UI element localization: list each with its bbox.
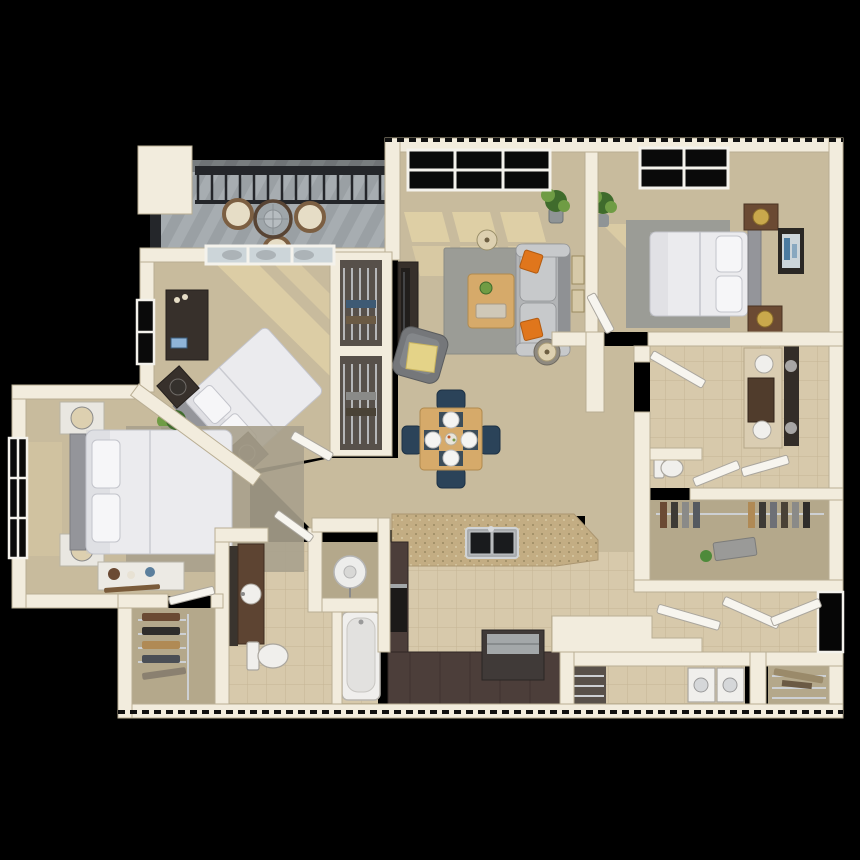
toilet-nook-wall (650, 448, 702, 460)
steel-top-appliance (482, 630, 544, 680)
vanity-mirror (229, 546, 238, 646)
lamp (71, 407, 93, 429)
pillow (92, 440, 120, 488)
bedroom2-north-wall (140, 248, 210, 262)
pillow (92, 494, 120, 542)
bathtub (342, 612, 380, 700)
folded-clothes (142, 641, 180, 649)
sink (753, 421, 771, 439)
range-handle (389, 584, 407, 588)
bedroom2-dresser (166, 290, 208, 360)
kitchen-double-sink (466, 526, 518, 558)
front-door-opening (818, 592, 843, 652)
dining-chair (402, 426, 422, 454)
patio-table (255, 201, 291, 237)
washer-door (694, 678, 708, 692)
balcony-column (138, 146, 192, 214)
folded-clothes (142, 613, 180, 621)
patio-chair (296, 203, 324, 231)
bedroom3-bed (650, 228, 761, 320)
dining-chair (437, 390, 465, 410)
hanging-clothes (346, 300, 376, 308)
heater-nook-north-wall (312, 518, 378, 532)
hanging-clothes (346, 392, 376, 400)
centerpiece (445, 433, 457, 445)
floor-plan-render (0, 0, 860, 860)
orange-pillow (520, 318, 543, 341)
kitchen-west-wall (378, 518, 390, 652)
gold-lamp (753, 209, 769, 225)
black-lamp (170, 379, 186, 395)
wall-frames (572, 256, 584, 312)
glass-reflection (256, 250, 276, 260)
tub-divider-wall (332, 612, 342, 704)
dryer-door (723, 678, 737, 692)
closet2-south-wall (634, 580, 843, 592)
closet-west-wall (118, 594, 132, 718)
bedroom3-window (640, 148, 728, 188)
sink (755, 355, 773, 373)
storage-bench (98, 562, 184, 593)
hall-jut-wall-v (586, 332, 604, 412)
laptop-screen (171, 338, 187, 348)
balcony-railing-top (195, 166, 388, 175)
master-closet-north-stub (211, 594, 223, 608)
floor-plan-svg (0, 0, 860, 860)
bedroom3-south-wall (648, 332, 843, 346)
heater-nook-south-wall (322, 598, 378, 612)
black-range (389, 584, 407, 632)
vanity-cabinet (748, 378, 774, 422)
pillow (716, 236, 742, 272)
living-room-window (408, 150, 550, 190)
green-item (700, 550, 712, 562)
toilet (654, 458, 683, 478)
laundry-pantry-divider (750, 652, 766, 704)
headboard (70, 434, 86, 550)
laundry-west-wall (560, 652, 574, 704)
folded-clothes (142, 655, 180, 663)
sliding-glass-door (206, 246, 334, 264)
mirror-reflection (785, 422, 797, 434)
hanging-clothes (346, 316, 376, 324)
bath2-west-stub (634, 346, 650, 362)
wall-art (778, 228, 804, 274)
glass-reflection (222, 250, 242, 260)
bath2-closet-wall (690, 488, 843, 500)
pillow (716, 276, 742, 312)
masterbath-north-wall (215, 528, 268, 542)
railing-bottom-rail (195, 200, 388, 204)
master-window (9, 438, 27, 558)
mirror-reflection (785, 360, 797, 372)
masterbath-west-wall (215, 528, 229, 704)
tv-reflection (403, 272, 405, 334)
master-closet-north-wall (118, 594, 168, 608)
folded-clothes (142, 627, 180, 635)
patio-chair (224, 200, 252, 228)
living-west-wall (385, 138, 400, 260)
bedroom2-window (137, 300, 154, 364)
hanging-clothes (346, 408, 376, 416)
bottom-row-wall (560, 652, 843, 666)
dining-chair (480, 426, 500, 454)
floor-lamp (477, 230, 497, 250)
master-south-wall (12, 594, 122, 608)
dining-chair (437, 468, 465, 488)
master-north-wall (12, 385, 148, 399)
coffee-table (468, 274, 514, 328)
toilet (247, 642, 288, 670)
hall-bath2-wall (634, 412, 650, 592)
glass-reflection (294, 250, 314, 260)
gold-lamp (757, 311, 773, 327)
